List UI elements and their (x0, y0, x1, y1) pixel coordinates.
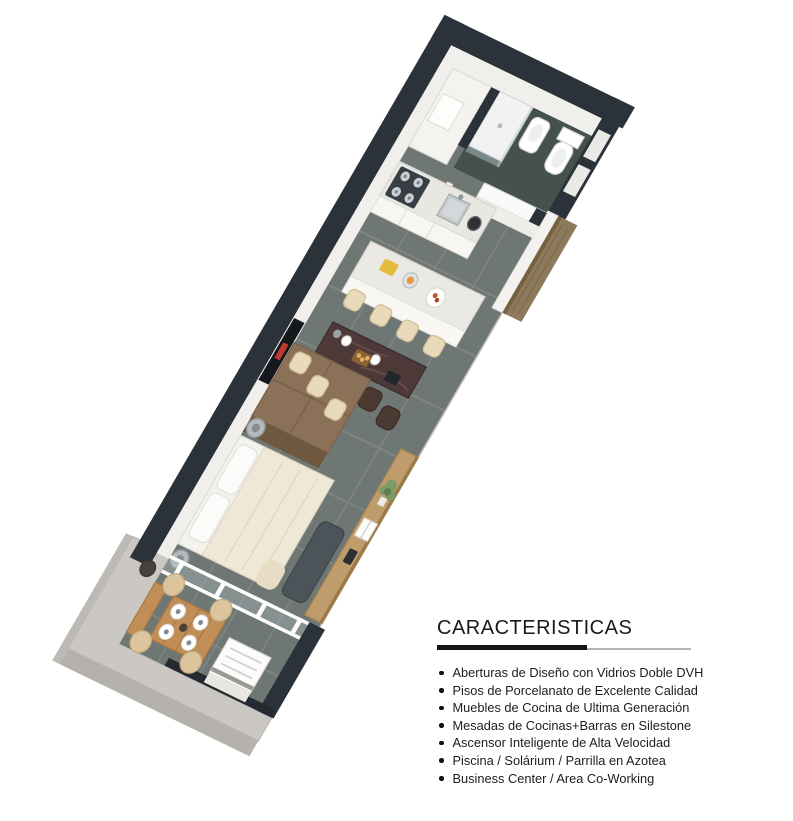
feature-item: Mesadas de Cocinas+Barras en Silestone (437, 717, 767, 735)
features-heading: CARACTERISTICAS (437, 617, 767, 640)
features-underline (437, 643, 767, 650)
bullet-icon (439, 706, 444, 711)
bullet-icon (439, 776, 444, 781)
feature-list: Aberturas de Diseño con Vidrios Doble DV… (437, 664, 767, 787)
bullet-icon (439, 688, 444, 693)
bullet-icon (439, 758, 444, 763)
underline-thick (437, 645, 587, 650)
feature-item: Pisos de Porcelanato de Excelente Calida… (437, 682, 767, 700)
bullet-icon (439, 723, 444, 728)
underline-thin (587, 648, 691, 650)
bullet-icon (439, 741, 444, 746)
features-panel: CARACTERISTICAS Aberturas de Diseño con … (437, 617, 767, 787)
feature-item: Piscina / Solárium / Parrilla en Azotea (437, 752, 767, 770)
feature-item: Ascensor Inteligente de Alta Velocidad (437, 734, 767, 752)
feature-item: Muebles de Cocina de Ultima Generación (437, 699, 767, 717)
feature-item: Aberturas de Diseño con Vidrios Doble DV… (437, 664, 767, 682)
bullet-icon (439, 671, 444, 676)
feature-item: Business Center / Area Co-Working (437, 770, 767, 788)
